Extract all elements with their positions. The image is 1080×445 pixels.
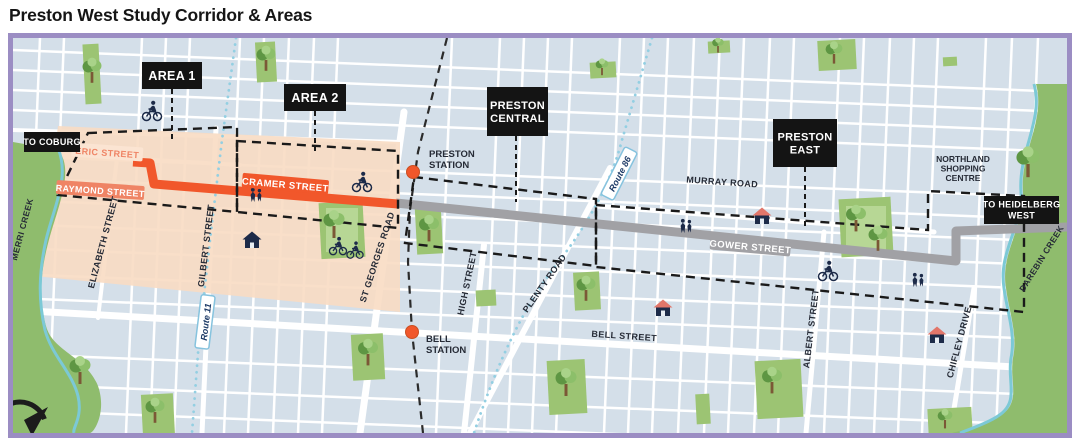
to-coburg-label: TO COBURG bbox=[23, 132, 81, 152]
label-box-text: TO HEIDELBERG bbox=[983, 200, 1061, 210]
station-dot bbox=[407, 166, 420, 179]
svg-text:NORTHLAND: NORTHLAND bbox=[936, 154, 990, 164]
park bbox=[927, 407, 972, 433]
label-box-text: EAST bbox=[790, 144, 821, 156]
park bbox=[943, 57, 957, 67]
label-box-text: AREA 2 bbox=[291, 91, 338, 105]
station-name: STATION bbox=[426, 345, 466, 356]
station-name: BELL bbox=[426, 334, 451, 345]
label-box-text: PRESTON bbox=[490, 100, 545, 112]
page-title: Preston West Study Corridor & Areas bbox=[9, 5, 312, 26]
map: ERIC STREETRAYMOND STREETCRAMER STREETGO… bbox=[13, 38, 1067, 433]
station-name: PRESTON bbox=[429, 149, 475, 160]
park bbox=[695, 394, 711, 425]
park bbox=[476, 289, 497, 306]
label-box-text: PRESTON bbox=[777, 131, 832, 143]
label-box-text: AREA 1 bbox=[148, 69, 195, 83]
svg-text:SHOPPING: SHOPPING bbox=[941, 164, 986, 174]
label-box-text: TO COBURG bbox=[23, 137, 81, 147]
station-name: STATION bbox=[429, 160, 469, 171]
label-box-text: WEST bbox=[1008, 211, 1035, 221]
park bbox=[755, 359, 804, 419]
station-dot bbox=[406, 326, 419, 339]
map-figure: ERIC STREETRAYMOND STREETCRAMER STREETGO… bbox=[8, 33, 1072, 438]
to-heidelberg-west-label: TO HEIDELBERGWEST bbox=[983, 196, 1061, 224]
label-box-text: CENTRAL bbox=[490, 113, 545, 125]
svg-text:CENTRE: CENTRE bbox=[946, 173, 981, 183]
